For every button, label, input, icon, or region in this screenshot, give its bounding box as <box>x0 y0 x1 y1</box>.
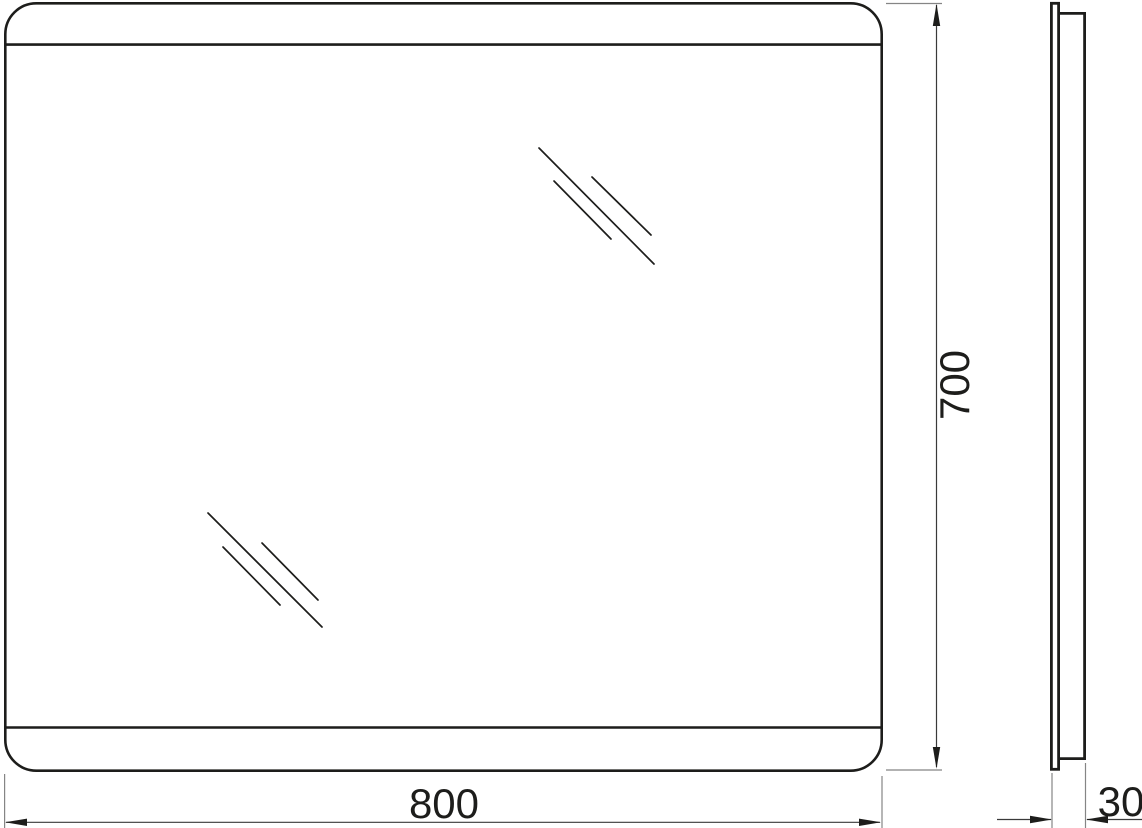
dimension-label-width: 800 <box>409 780 479 827</box>
arrowhead-up-icon <box>933 4 940 26</box>
side-view-glass-panel <box>1051 3 1058 769</box>
side-view <box>1051 3 1084 769</box>
dimension-label-depth: 30 <box>1098 778 1142 825</box>
dimension-label-height: 700 <box>931 350 978 420</box>
side-view-backing-frame <box>1059 13 1085 758</box>
reflection-hatch-long <box>208 513 322 627</box>
mirror-front-outline <box>5 3 881 770</box>
reflection-mark-upper <box>539 148 654 264</box>
reflection-hatch-long <box>539 148 654 264</box>
drawing-sheet: 800 700 30 <box>0 0 1142 828</box>
dimension-height: 700 <box>886 4 978 771</box>
arrowhead-down-icon <box>933 747 940 769</box>
mirror-technical-drawing: 800 700 30 <box>0 0 1142 828</box>
reflection-hatch-short <box>592 177 651 235</box>
reflection-hatch-short <box>262 543 318 600</box>
reflection-hatch-short <box>554 181 611 239</box>
arrowhead-left-icon <box>5 819 27 826</box>
front-view <box>4 3 883 770</box>
dimension-width: 800 <box>5 774 882 828</box>
dimension-depth: 30 <box>997 763 1142 828</box>
arrowhead-right-icon <box>859 819 881 826</box>
arrowhead-right-icon <box>1030 816 1052 823</box>
reflection-mark-lower <box>208 513 322 627</box>
